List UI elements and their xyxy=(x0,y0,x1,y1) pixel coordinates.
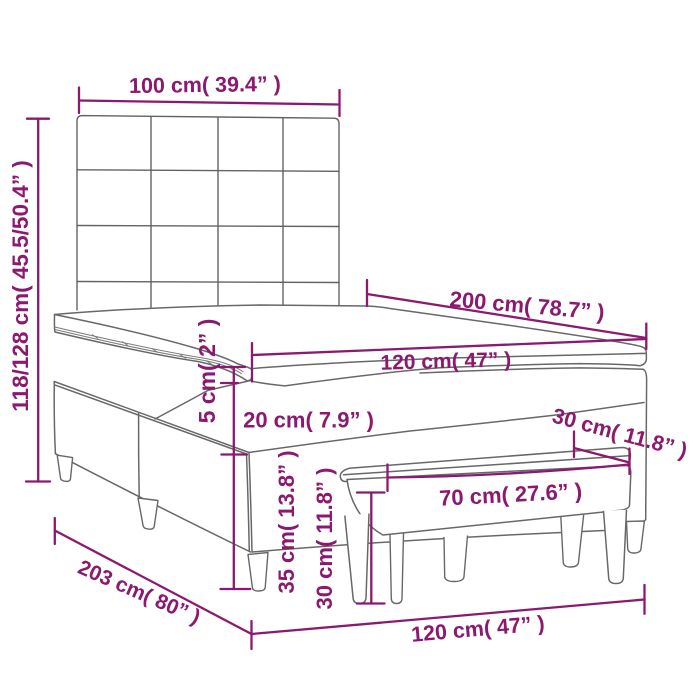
svg-text:30 cm( 11.8” ): 30 cm( 11.8” ) xyxy=(312,468,337,610)
svg-text:120 cm( 47” ): 120 cm( 47” ) xyxy=(380,348,511,374)
svg-text:100 cm( 39.4” ): 100 cm( 39.4” ) xyxy=(129,72,281,98)
svg-text:20 cm( 7.9” ): 20 cm( 7.9” ) xyxy=(243,408,374,433)
svg-text:118/128 cm( 45.5/50.4” ): 118/128 cm( 45.5/50.4” ) xyxy=(8,160,33,411)
svg-text:5 cm( 2” ): 5 cm( 2” ) xyxy=(194,319,220,424)
svg-text:35 cm( 13.8” ): 35 cm( 13.8” ) xyxy=(274,450,299,593)
